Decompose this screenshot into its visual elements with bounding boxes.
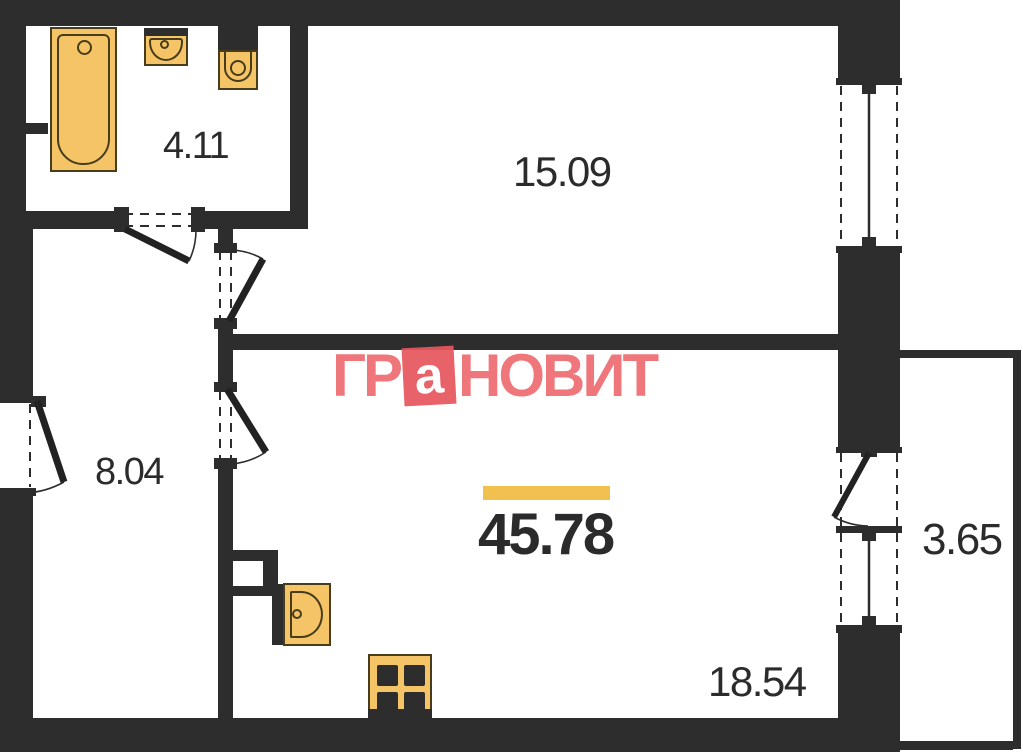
watermark-suffix: НОВИТ (458, 347, 656, 405)
watermark: ГР а НОВИТ (332, 347, 656, 405)
watermark-boxed-letter: а (402, 346, 457, 407)
floor-plan: 4.11 15.09 8.04 18.54 3.65 45.78 ГР а НО… (0, 0, 1023, 752)
watermark-prefix: ГР (332, 347, 400, 405)
